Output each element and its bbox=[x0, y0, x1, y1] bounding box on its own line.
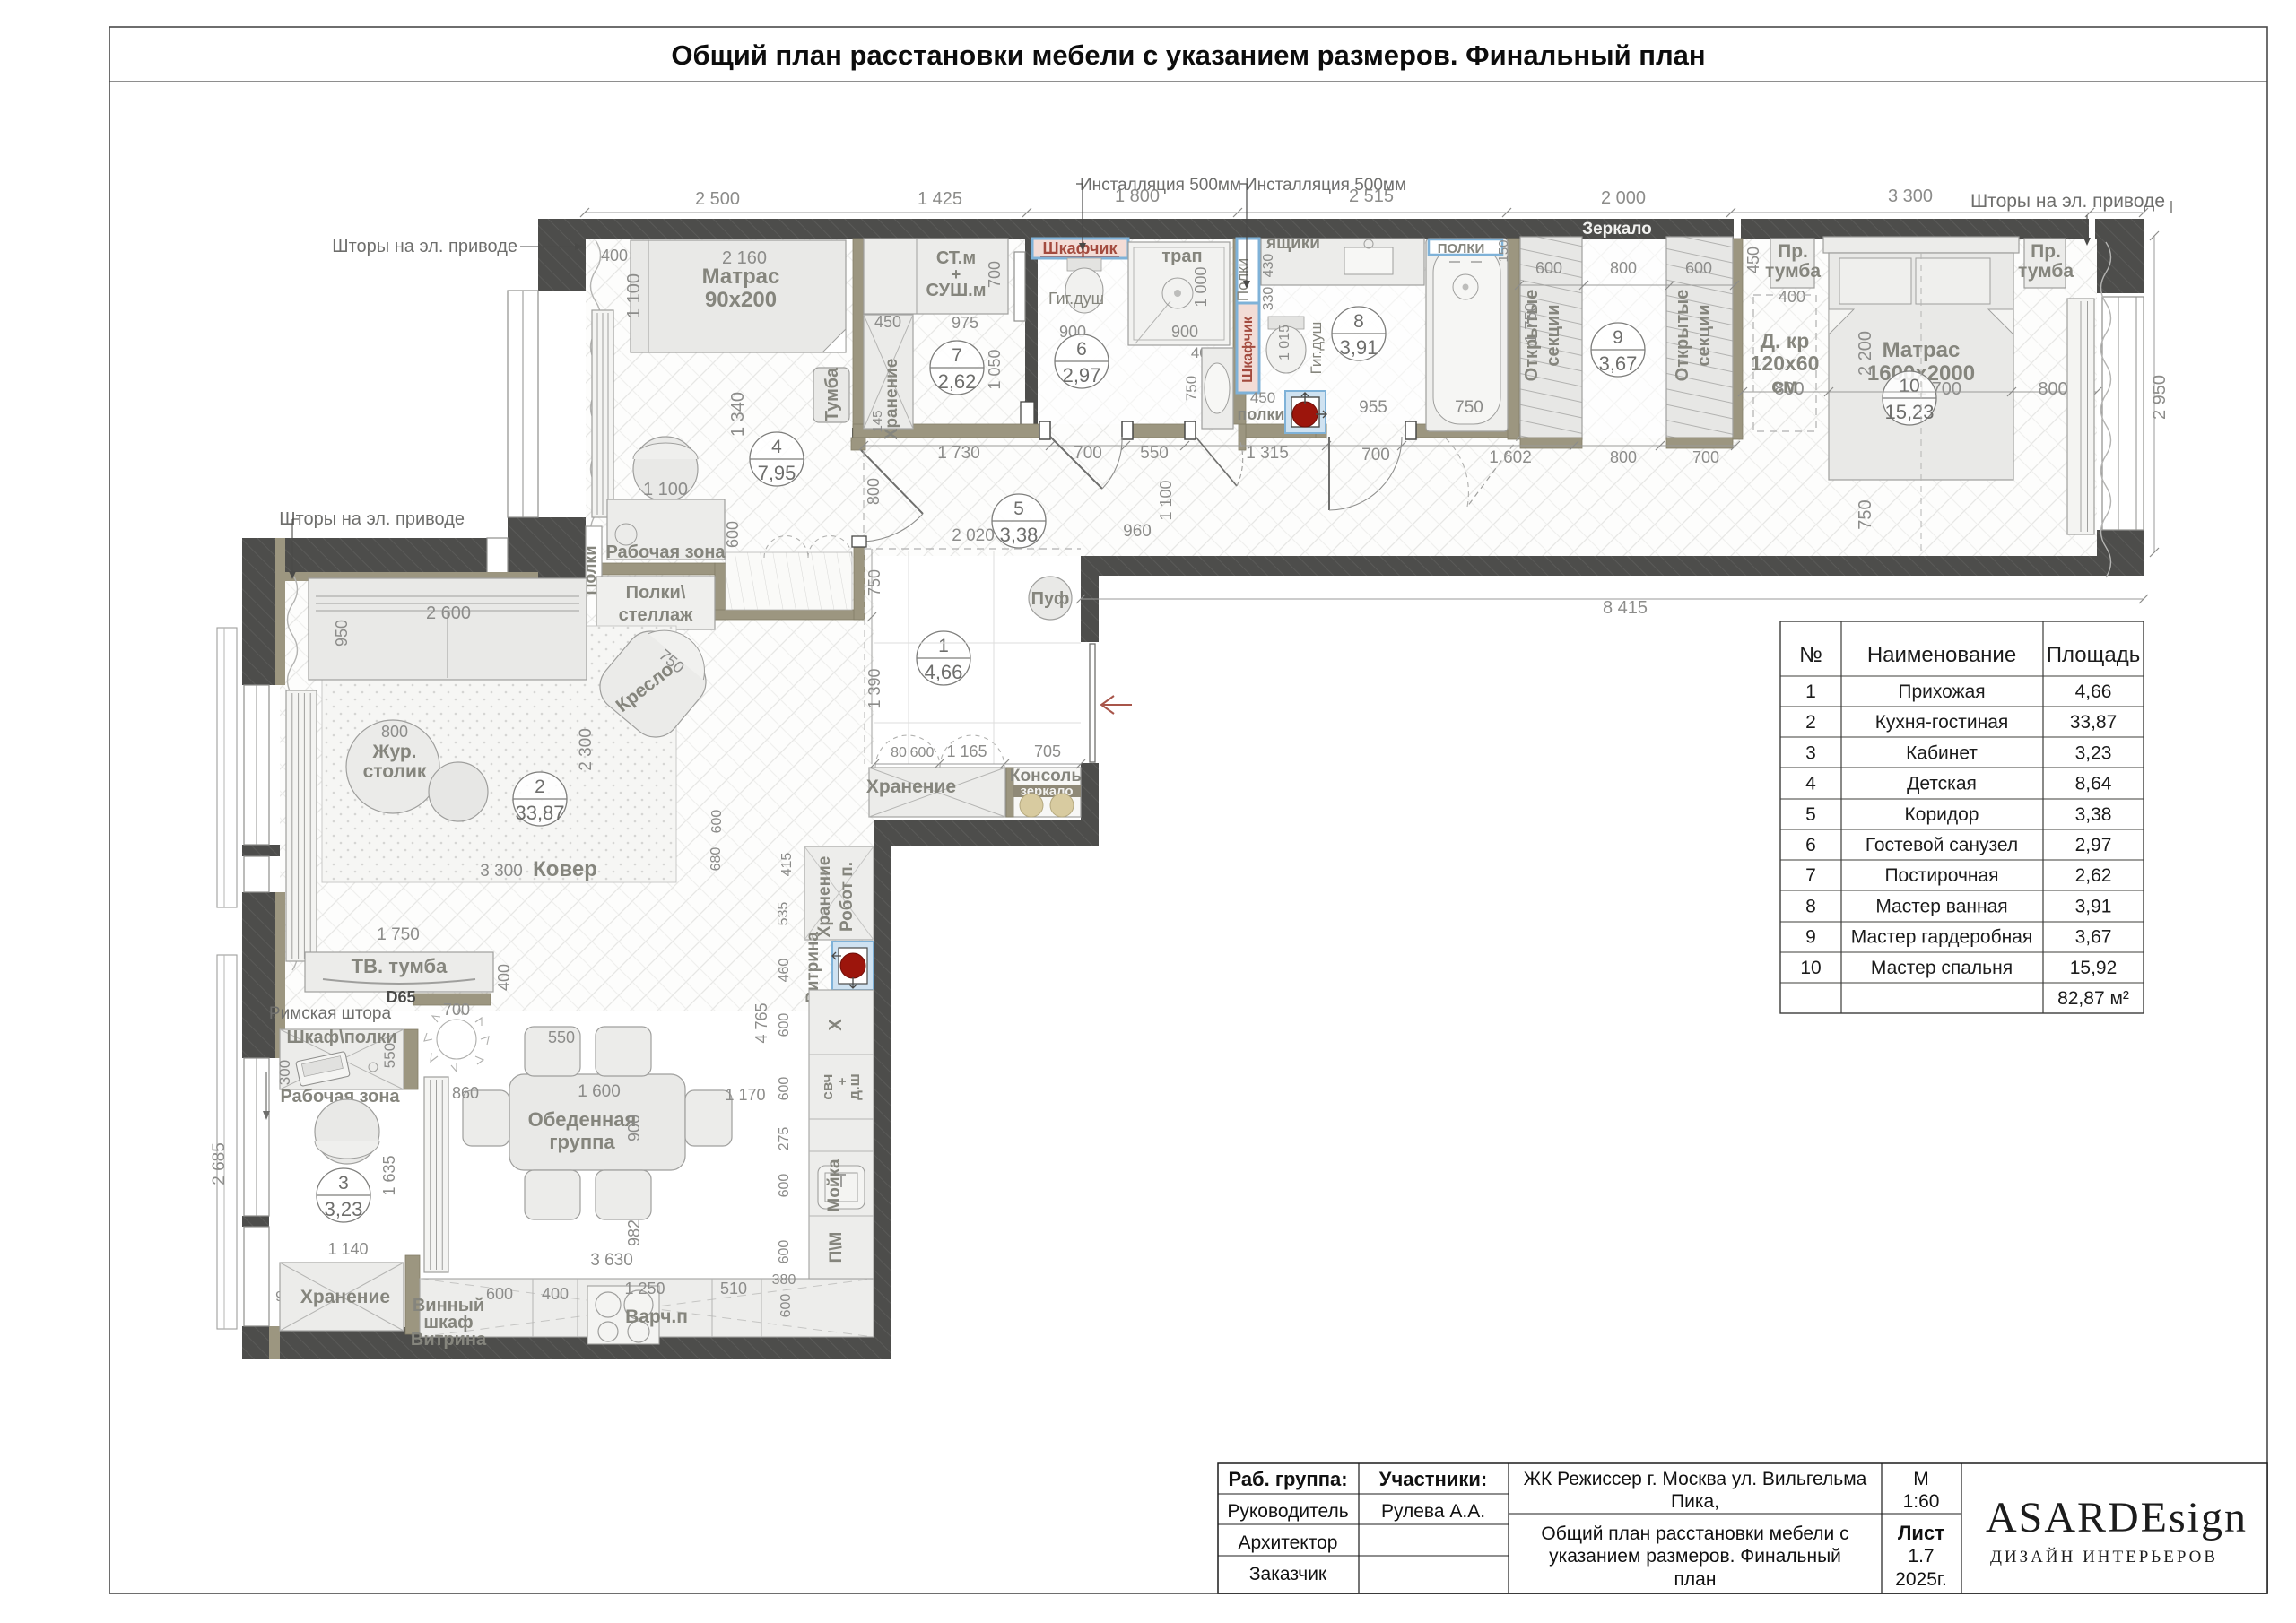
svg-text:2,97: 2,97 bbox=[2075, 835, 2112, 855]
svg-text:Пр.: Пр. bbox=[2031, 241, 2061, 262]
svg-text:Общий план расстановки мебели: Общий план расстановки мебели с bbox=[1541, 1523, 1848, 1544]
svg-text:400: 400 bbox=[542, 1285, 569, 1303]
svg-text:550: 550 bbox=[381, 1043, 398, 1068]
svg-text:82,87 м²: 82,87 м² bbox=[2057, 988, 2129, 1009]
svg-text:Жур.: Жур. bbox=[371, 742, 416, 762]
svg-text:1.7: 1.7 bbox=[1908, 1546, 1934, 1567]
svg-text:460: 460 bbox=[777, 959, 792, 983]
svg-text:535: 535 bbox=[776, 902, 791, 926]
svg-text:8 415: 8 415 bbox=[1603, 598, 1648, 618]
svg-text:свч: свч bbox=[819, 1073, 836, 1099]
svg-text:Раб. группа:: Раб. группа: bbox=[1228, 1468, 1347, 1490]
svg-text:15,92: 15,92 bbox=[2070, 958, 2118, 978]
svg-text:Детская: Детская bbox=[1907, 774, 1977, 794]
svg-text:Шкафчик: Шкафчик bbox=[1240, 316, 1256, 383]
svg-text:ПОЛКИ: ПОЛКИ bbox=[1438, 241, 1485, 256]
svg-text:1 602: 1 602 bbox=[1489, 448, 1532, 467]
svg-text:Робот п.: Робот п. bbox=[838, 862, 857, 932]
svg-text:600: 600 bbox=[778, 1294, 794, 1318]
svg-text:ASARDEsign: ASARDEsign bbox=[1986, 1494, 2248, 1541]
svg-text:Инсталляция 500мм: Инсталляция 500мм bbox=[1245, 176, 1406, 195]
svg-text:Полки: Полки bbox=[1234, 258, 1251, 301]
svg-text:1 750: 1 750 bbox=[377, 925, 420, 944]
svg-text:5: 5 bbox=[1013, 499, 1024, 519]
svg-text:3,91: 3,91 bbox=[2075, 896, 2112, 916]
svg-text:2,62: 2,62 bbox=[938, 370, 977, 393]
svg-text:2: 2 bbox=[1805, 712, 1816, 733]
svg-text:860: 860 bbox=[452, 1084, 479, 1102]
svg-text:П\М: П\М bbox=[827, 1232, 846, 1263]
svg-text:955: 955 bbox=[1359, 398, 1387, 417]
svg-text:700: 700 bbox=[1074, 444, 1102, 463]
svg-text:Хранение: Хранение bbox=[300, 1287, 390, 1307]
svg-text:9: 9 bbox=[1613, 327, 1623, 348]
svg-text:2 020: 2 020 bbox=[952, 526, 995, 545]
svg-text:1 250: 1 250 bbox=[624, 1280, 665, 1298]
svg-text:Шторы на эл. приводе: Шторы на эл. приводе bbox=[332, 237, 517, 256]
svg-text:4: 4 bbox=[771, 437, 782, 457]
svg-text:Общий план расстановки мебели: Общий план расстановки мебели с указание… bbox=[671, 39, 1705, 71]
svg-text:Матрас: Матрас bbox=[702, 265, 780, 289]
svg-text:1: 1 bbox=[938, 636, 949, 656]
svg-text:Хранение: Хранение bbox=[815, 856, 834, 938]
svg-text:Мастер ванная: Мастер ванная bbox=[1875, 896, 2007, 916]
svg-text:145: 145 bbox=[870, 410, 885, 432]
svg-text:7: 7 bbox=[1805, 865, 1816, 886]
svg-text:трап: трап bbox=[1161, 247, 1202, 266]
svg-text:тумба: тумба bbox=[1765, 261, 1821, 282]
svg-text:д.ш: д.ш bbox=[846, 1073, 863, 1100]
svg-text:3,67: 3,67 bbox=[1599, 352, 1638, 375]
svg-text:600: 600 bbox=[777, 1013, 792, 1037]
svg-text:120х60: 120х60 bbox=[1751, 352, 1820, 375]
svg-text:600: 600 bbox=[724, 521, 742, 548]
svg-text:330: 330 bbox=[1261, 287, 1276, 311]
svg-text:90х200: 90х200 bbox=[705, 288, 777, 312]
svg-text:2,62: 2,62 bbox=[2075, 865, 2112, 886]
svg-text:8,64: 8,64 bbox=[2075, 774, 2112, 794]
svg-text:4,66: 4,66 bbox=[925, 661, 963, 683]
svg-text:900: 900 bbox=[625, 1115, 643, 1141]
svg-text:секции: секции bbox=[1544, 304, 1563, 366]
svg-text:М: М bbox=[1913, 1469, 1929, 1489]
svg-text:2: 2 bbox=[535, 777, 545, 797]
svg-text:1 730: 1 730 bbox=[937, 444, 980, 463]
svg-text:750: 750 bbox=[1183, 376, 1200, 401]
svg-text:Мойка: Мойка bbox=[825, 1159, 844, 1212]
svg-text:800: 800 bbox=[381, 723, 408, 741]
svg-text:тумба: тумба bbox=[2018, 261, 2074, 282]
svg-text:600: 600 bbox=[777, 1174, 792, 1198]
svg-text:ТВ. тумба: ТВ. тумба bbox=[352, 955, 448, 977]
svg-text:Руководитель: Руководитель bbox=[1227, 1501, 1348, 1522]
svg-text:3,91: 3,91 bbox=[1340, 336, 1378, 359]
svg-text:1 340: 1 340 bbox=[728, 392, 748, 437]
svg-text:705: 705 bbox=[1034, 742, 1061, 760]
svg-text:4 765: 4 765 bbox=[752, 1002, 770, 1043]
svg-text:секции: секции bbox=[1694, 304, 1714, 366]
svg-text:550: 550 bbox=[1140, 444, 1169, 463]
svg-text:Консоль: Консоль bbox=[1010, 767, 1082, 785]
svg-text:3,67: 3,67 bbox=[2075, 927, 2112, 948]
svg-text:2 685: 2 685 bbox=[210, 1142, 229, 1185]
svg-text:Гиг.душ: Гиг.душ bbox=[1048, 290, 1104, 308]
svg-text:600: 600 bbox=[777, 1077, 792, 1101]
svg-text:400: 400 bbox=[1779, 288, 1805, 306]
svg-text:1 425: 1 425 bbox=[918, 189, 962, 209]
svg-text:4: 4 bbox=[1805, 774, 1816, 794]
svg-text:400: 400 bbox=[495, 964, 513, 991]
svg-text:Витрина: Витрина bbox=[411, 1330, 487, 1350]
svg-text:ЖК Режиссер г. Москва ул. Виль: ЖК Режиссер г. Москва ул. Вильгельма bbox=[1524, 1469, 1867, 1489]
svg-text:8: 8 bbox=[1805, 896, 1816, 916]
svg-text:450: 450 bbox=[874, 313, 901, 331]
svg-text:№: № bbox=[1799, 643, 1822, 667]
svg-text:800: 800 bbox=[1610, 448, 1637, 466]
svg-text:указанием размеров. Финальный: указанием размеров. Финальный bbox=[1549, 1546, 1841, 1567]
svg-text:2 200: 2 200 bbox=[1856, 331, 1875, 376]
svg-text:Открытые: Открытые bbox=[1673, 290, 1692, 382]
svg-text:2 500: 2 500 bbox=[695, 189, 740, 209]
svg-text:9: 9 bbox=[1805, 927, 1816, 948]
svg-text:600: 600 bbox=[777, 1240, 792, 1264]
svg-text:1 100: 1 100 bbox=[624, 273, 644, 318]
svg-text:150: 150 bbox=[1496, 239, 1511, 262]
svg-text:2 300: 2 300 bbox=[577, 728, 596, 771]
svg-text:Шкафчик: Шкафчик bbox=[1043, 239, 1118, 257]
svg-text:Коридор: Коридор bbox=[1905, 804, 1979, 825]
svg-text:Участники:: Участники: bbox=[1379, 1468, 1487, 1490]
svg-text:Наименование: Наименование bbox=[1867, 643, 2016, 667]
svg-text:700: 700 bbox=[1361, 446, 1390, 464]
svg-text:Римская штора: Римская штора bbox=[269, 1004, 392, 1023]
svg-text:680: 680 bbox=[709, 847, 724, 872]
svg-text:950: 950 bbox=[333, 620, 351, 647]
svg-text:800: 800 bbox=[865, 478, 883, 505]
svg-text:15,23: 15,23 bbox=[1884, 401, 1934, 423]
svg-text:750: 750 bbox=[1856, 499, 1875, 529]
svg-text:10: 10 bbox=[1800, 958, 1821, 978]
svg-text:7,95: 7,95 bbox=[758, 462, 796, 484]
svg-text:см: см bbox=[1771, 374, 1798, 397]
svg-text:Площадь: Площадь bbox=[2047, 643, 2140, 667]
svg-text:Полки\: Полки\ bbox=[626, 583, 686, 603]
svg-text:1 600: 1 600 bbox=[578, 1082, 621, 1101]
svg-text:Заказчик: Заказчик bbox=[1249, 1564, 1327, 1584]
svg-text:1: 1 bbox=[1805, 681, 1816, 702]
svg-text:Рабочая зона: Рабочая зона bbox=[605, 542, 726, 562]
svg-text:5: 5 bbox=[1805, 804, 1816, 825]
svg-text:3 300: 3 300 bbox=[480, 862, 523, 881]
svg-text:1:60: 1:60 bbox=[1903, 1491, 1940, 1512]
svg-text:510: 510 bbox=[720, 1280, 747, 1298]
svg-text:80: 80 bbox=[891, 745, 907, 760]
svg-text:700: 700 bbox=[443, 1001, 470, 1019]
svg-text:3,23: 3,23 bbox=[325, 1198, 363, 1220]
svg-text:2 600: 2 600 bbox=[426, 603, 471, 623]
svg-text:6: 6 bbox=[1805, 835, 1816, 855]
svg-text:33,87: 33,87 bbox=[515, 802, 564, 824]
svg-text:группа: группа bbox=[549, 1131, 615, 1153]
svg-text:750: 750 bbox=[865, 569, 883, 596]
svg-text:Пр.: Пр. bbox=[1778, 241, 1808, 262]
svg-text:Д. кр: Д. кр bbox=[1761, 329, 1810, 352]
svg-text:3: 3 bbox=[1805, 742, 1816, 763]
svg-text:Шторы на эл. приводе: Шторы на эл. приводе bbox=[279, 509, 465, 529]
svg-text:Гостевой санузел: Гостевой санузел bbox=[1865, 835, 2018, 855]
svg-text:1 100: 1 100 bbox=[1157, 480, 1175, 520]
svg-text:6: 6 bbox=[1076, 339, 1087, 360]
svg-text:2 000: 2 000 bbox=[1601, 188, 1646, 208]
svg-text:3,38: 3,38 bbox=[1000, 524, 1039, 546]
svg-text:1 015: 1 015 bbox=[1277, 325, 1292, 360]
svg-text:Шторы на эл. приводе: Шторы на эл. приводе bbox=[1970, 191, 2165, 212]
svg-text:1 750: 1 750 bbox=[1522, 302, 1540, 343]
svg-text:Тумба: Тумба bbox=[822, 367, 842, 421]
svg-text:10: 10 bbox=[1899, 376, 1919, 396]
svg-text:380: 380 bbox=[772, 1272, 796, 1288]
svg-text:450: 450 bbox=[1744, 247, 1762, 273]
svg-text:Постирочная: Постирочная bbox=[1884, 865, 1998, 886]
svg-text:600: 600 bbox=[1535, 259, 1562, 277]
svg-text:Гиг.душ: Гиг.душ bbox=[1308, 322, 1325, 375]
svg-text:2,97: 2,97 bbox=[1063, 364, 1101, 386]
svg-text:Хранение: Хранение bbox=[866, 777, 956, 797]
svg-text:3,23: 3,23 bbox=[2075, 742, 2112, 763]
svg-text:1 315: 1 315 bbox=[1246, 444, 1289, 463]
svg-text:Кухня-гостиная: Кухня-гостиная bbox=[1875, 712, 2009, 733]
svg-text:Хранение: Хранение bbox=[883, 359, 901, 440]
svg-text:Варч.п: Варч.п bbox=[625, 1306, 688, 1327]
svg-text:33,87: 33,87 bbox=[2070, 712, 2118, 733]
svg-text:450: 450 bbox=[1250, 389, 1275, 406]
svg-text:275: 275 bbox=[777, 1127, 792, 1151]
svg-text:Рулева А.А.: Рулева А.А. bbox=[1381, 1501, 1485, 1522]
svg-text:900: 900 bbox=[1171, 323, 1198, 341]
svg-text:Пуф: Пуф bbox=[1031, 589, 1070, 609]
svg-text:СУШ.м: СУШ.м bbox=[926, 281, 986, 300]
svg-text:Обеденная: Обеденная bbox=[528, 1108, 637, 1131]
svg-text:800: 800 bbox=[2038, 379, 2067, 399]
svg-text:982: 982 bbox=[625, 1219, 643, 1246]
svg-text:Х: Х bbox=[826, 1019, 846, 1031]
svg-text:Зеркало: Зеркало bbox=[1582, 220, 1652, 239]
svg-text:Ковер: Ковер bbox=[533, 857, 597, 881]
svg-text:700: 700 bbox=[986, 261, 1004, 288]
svg-text:3 300: 3 300 bbox=[1888, 187, 1933, 206]
svg-text:1 100: 1 100 bbox=[643, 480, 688, 499]
svg-text:Инсталляция 500мм: Инсталляция 500мм bbox=[1080, 176, 1241, 195]
svg-text:600: 600 bbox=[910, 745, 935, 760]
svg-text:1 390: 1 390 bbox=[865, 668, 883, 708]
svg-text:1 140: 1 140 bbox=[327, 1240, 368, 1258]
svg-text:Кабинет: Кабинет bbox=[1906, 742, 1978, 763]
svg-text:975: 975 bbox=[952, 314, 978, 332]
svg-text:1 170: 1 170 bbox=[725, 1086, 765, 1104]
svg-text:полки: полки bbox=[1238, 405, 1285, 423]
svg-text:2025г.: 2025г. bbox=[1895, 1569, 1947, 1590]
svg-text:960: 960 bbox=[1123, 522, 1152, 541]
svg-text:4,66: 4,66 bbox=[2075, 681, 2112, 702]
svg-text:ДИЗАЙН ИНТЕРЬЕРОВ: ДИЗАЙН ИНТЕРЬЕРОВ bbox=[1990, 1548, 2218, 1567]
svg-text:Лист: Лист bbox=[1898, 1522, 1944, 1544]
svg-text:план: план bbox=[1674, 1569, 1717, 1590]
svg-text:800: 800 bbox=[1610, 259, 1637, 277]
svg-text:ящики: ящики bbox=[1265, 234, 1320, 253]
svg-text:Мастер гардеробная: Мастер гардеробная bbox=[1851, 927, 2033, 948]
svg-text:Мастер спальня: Мастер спальня bbox=[1871, 958, 2013, 978]
svg-text:Пика,: Пика, bbox=[1671, 1491, 1719, 1512]
svg-text:600: 600 bbox=[709, 810, 725, 834]
svg-text:600: 600 bbox=[1685, 259, 1712, 277]
svg-text:700: 700 bbox=[1692, 448, 1719, 466]
svg-text:415: 415 bbox=[779, 853, 795, 877]
svg-text:стеллаж: стеллаж bbox=[619, 605, 694, 625]
svg-text:2 160: 2 160 bbox=[722, 248, 767, 268]
svg-text:Прихожая: Прихожая bbox=[1898, 681, 1985, 702]
svg-text:3 630: 3 630 bbox=[590, 1251, 633, 1270]
svg-text:1 050: 1 050 bbox=[986, 349, 1004, 389]
svg-text:столик: столик bbox=[363, 761, 427, 782]
svg-text:600: 600 bbox=[486, 1285, 513, 1303]
svg-text:3,38: 3,38 bbox=[2075, 804, 2112, 825]
svg-text:1 000: 1 000 bbox=[1192, 266, 1210, 307]
svg-text:400: 400 bbox=[601, 247, 628, 265]
svg-text:430: 430 bbox=[1261, 254, 1276, 278]
svg-text:Архитектор: Архитектор bbox=[1239, 1532, 1338, 1553]
svg-text:7: 7 bbox=[952, 345, 962, 366]
svg-text:1 165: 1 165 bbox=[946, 742, 987, 760]
svg-text:300: 300 bbox=[276, 1060, 293, 1085]
svg-text:1 635: 1 635 bbox=[380, 1155, 398, 1195]
svg-text:3: 3 bbox=[338, 1173, 349, 1193]
svg-text:D65: D65 bbox=[386, 988, 415, 1006]
svg-text:2 950: 2 950 bbox=[2150, 375, 2170, 420]
svg-text:8: 8 bbox=[1353, 311, 1364, 332]
svg-text:550: 550 bbox=[548, 1028, 575, 1046]
svg-text:750: 750 bbox=[1455, 398, 1483, 417]
